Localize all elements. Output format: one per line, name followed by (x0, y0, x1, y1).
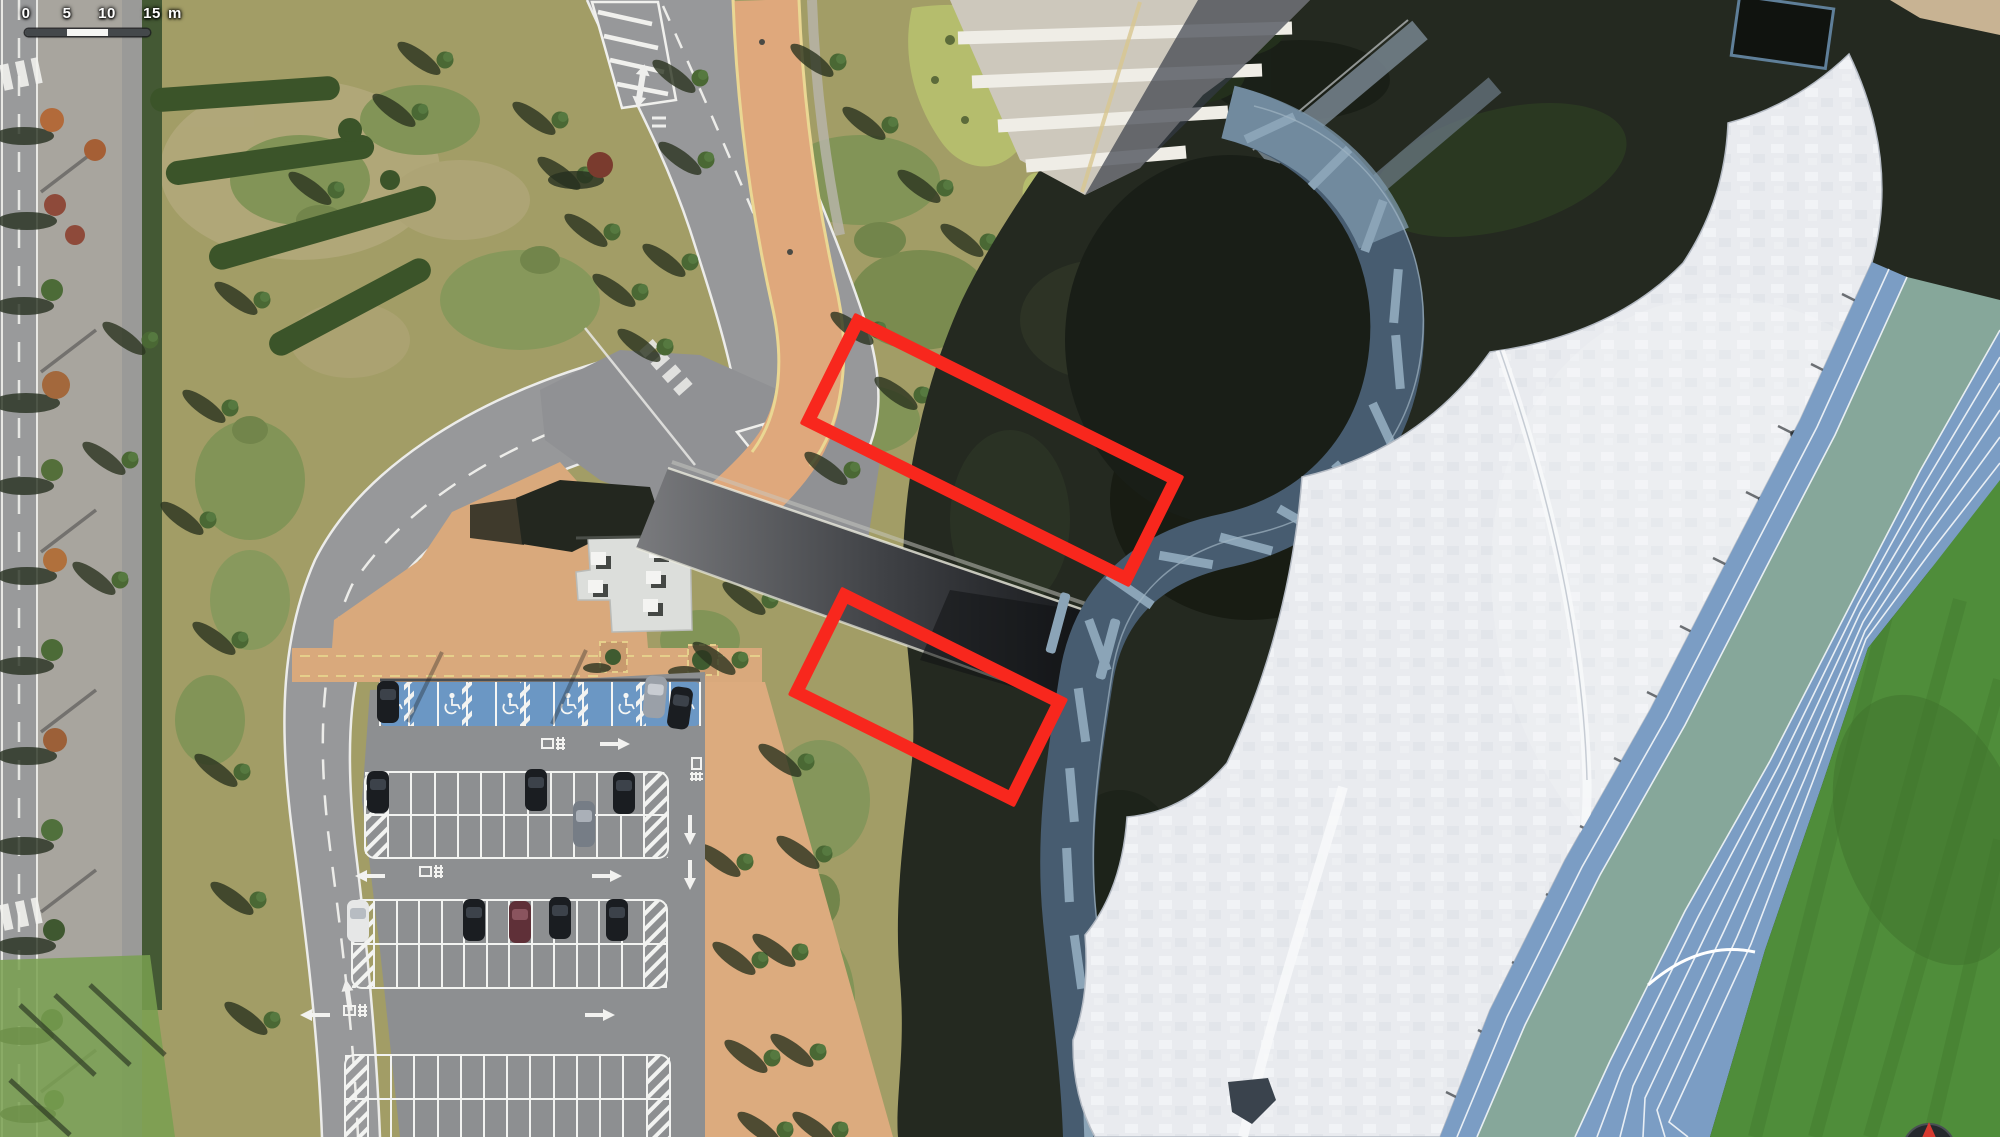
hedge-strip (142, 0, 162, 1010)
scale-unit: m (168, 5, 181, 22)
scale-tick-15: 15 (143, 5, 161, 22)
scale-seg-dark (108, 29, 150, 36)
scale-bar-capsule (25, 29, 150, 36)
scale-tick-0: 0 (22, 5, 31, 22)
aerial-scene (0, 0, 2000, 1137)
scale-bar: 0 5 10 15 m (8, 2, 208, 44)
scale-seg-light (67, 29, 109, 36)
dark-pad (1731, 0, 1833, 68)
satellite-map-canvas[interactable]: 0 5 10 15 m (0, 0, 2000, 1137)
scale-seg-dark (25, 29, 67, 36)
scale-tick-10: 10 (98, 5, 116, 22)
scale-tick-5: 5 (63, 5, 72, 22)
bottom-left-green (0, 955, 175, 1137)
